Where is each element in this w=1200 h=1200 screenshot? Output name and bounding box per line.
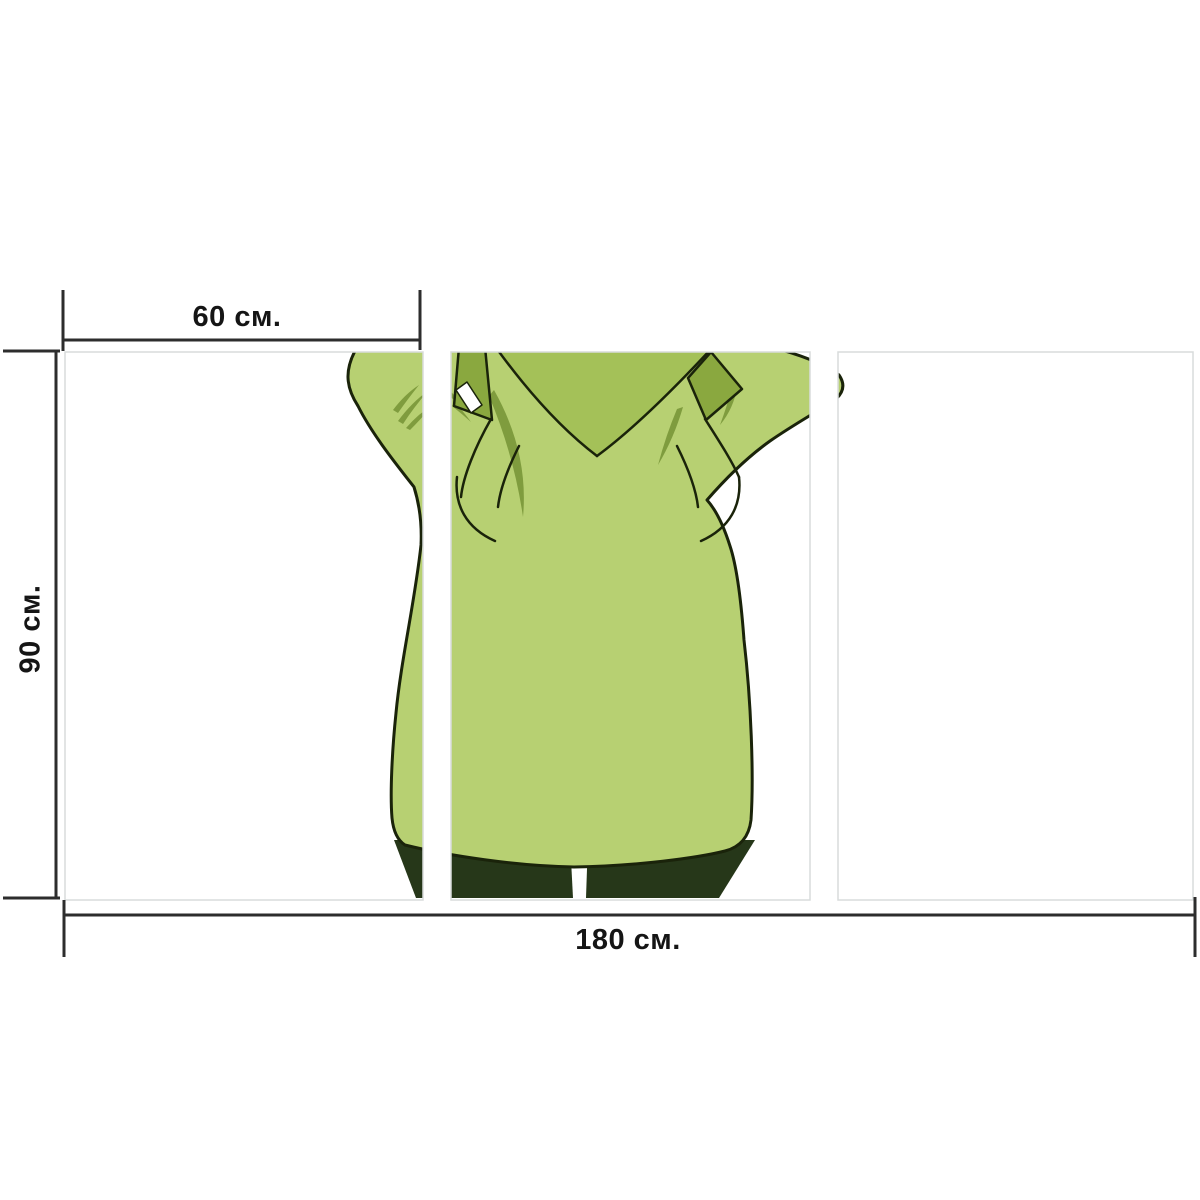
triptych-product-mockup: 60 см. 90 см. 180 см.: [0, 0, 1200, 1200]
mockup-canvas: [0, 0, 1200, 1200]
panel-right-background: [838, 352, 1193, 900]
panel-left-background: [65, 352, 423, 900]
height-label: 90 см.: [15, 585, 48, 674]
panel-gap-1: [423, 348, 451, 904]
panel-gap-2: [810, 348, 838, 904]
panel-width-label: 60 см.: [137, 301, 337, 334]
total-width-label: 180 см.: [528, 924, 728, 957]
